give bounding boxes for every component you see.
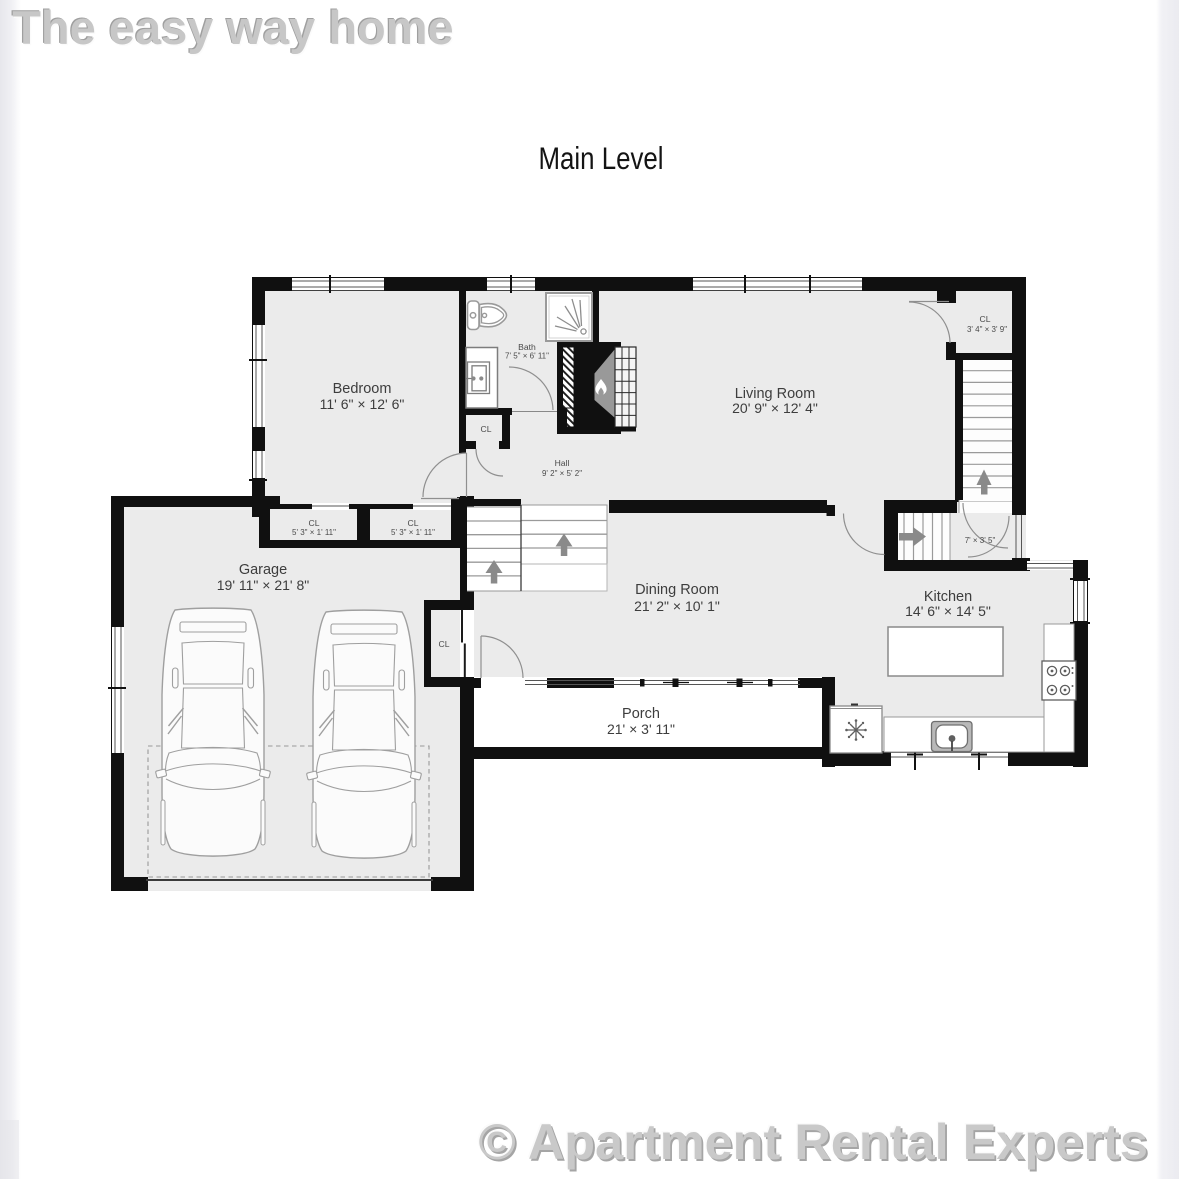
svg-text:5' 3" × 1' 11": 5' 3" × 1' 11" (292, 528, 336, 537)
svg-text:Main Level: Main Level (539, 140, 664, 176)
svg-text:CL: CL (481, 424, 492, 434)
svg-text:7' 5" × 6' 11": 7' 5" × 6' 11" (505, 352, 549, 361)
svg-text:11' 6" × 12' 6": 11' 6" × 12' 6" (320, 396, 405, 412)
svg-text:CL: CL (980, 314, 991, 324)
svg-text:The easy way home: The easy way home (12, 1, 453, 54)
svg-text:14' 6" × 14' 5": 14' 6" × 14' 5" (905, 603, 991, 619)
svg-text:5' 3" × 1' 11": 5' 3" × 1' 11" (391, 528, 435, 537)
svg-text:9' 2" × 5' 2": 9' 2" × 5' 2" (542, 469, 582, 478)
svg-text:19' 11" × 21' 8": 19' 11" × 21' 8" (217, 577, 310, 593)
svg-text:7' × 3' 5": 7' × 3' 5" (965, 536, 996, 545)
svg-text:CL: CL (408, 518, 419, 528)
svg-text:CL: CL (439, 639, 450, 649)
svg-text:Garage: Garage (239, 562, 287, 578)
svg-text:Hall: Hall (555, 458, 570, 468)
svg-text:20' 9" × 12' 4": 20' 9" × 12' 4" (732, 400, 818, 416)
svg-text:21' × 3' 11": 21' × 3' 11" (607, 721, 675, 737)
svg-text:3' 4" × 3' 9": 3' 4" × 3' 9" (967, 325, 1007, 334)
svg-text:Bath: Bath (518, 342, 536, 352)
svg-text:© Apartment Rental Experts: © Apartment Rental Experts (478, 1113, 1148, 1170)
svg-text:Bedroom: Bedroom (333, 381, 392, 397)
svg-text:21' 2" × 10' 1": 21' 2" × 10' 1" (634, 598, 720, 614)
svg-text:CL: CL (309, 518, 320, 528)
svg-text:Porch: Porch (622, 706, 660, 722)
svg-text:Dining Room: Dining Room (635, 582, 719, 598)
